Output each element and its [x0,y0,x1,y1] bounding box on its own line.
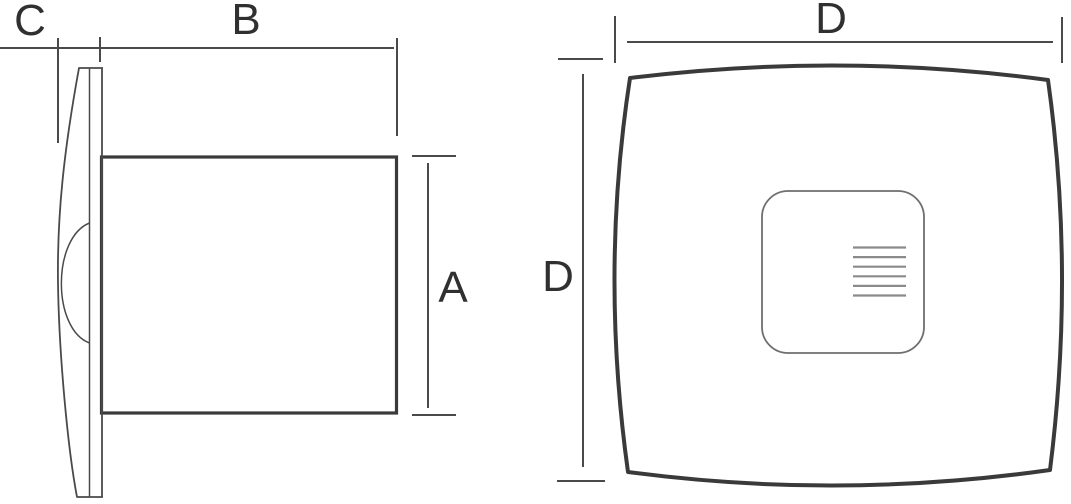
front-view: D D [542,0,1062,486]
label-dimension-d-top: D [815,0,847,43]
label-dimension-c: C [14,0,46,45]
front-view-faceplate-outline [614,65,1062,485]
label-dimension-a: A [438,263,468,312]
drawing-svg: C B A D D [0,0,1071,504]
label-dimension-b: B [231,0,260,44]
side-view-body-outline [102,157,397,413]
label-dimension-d-left: D [542,252,574,301]
side-view-cover-silhouette [58,68,103,497]
fan-dimension-drawing: C B A D D [0,0,1071,504]
front-view-grille-panel [762,191,924,353]
side-view: C B A [0,0,468,497]
side-view-cover-dome-arc [61,223,89,343]
grille-slats [853,248,906,296]
